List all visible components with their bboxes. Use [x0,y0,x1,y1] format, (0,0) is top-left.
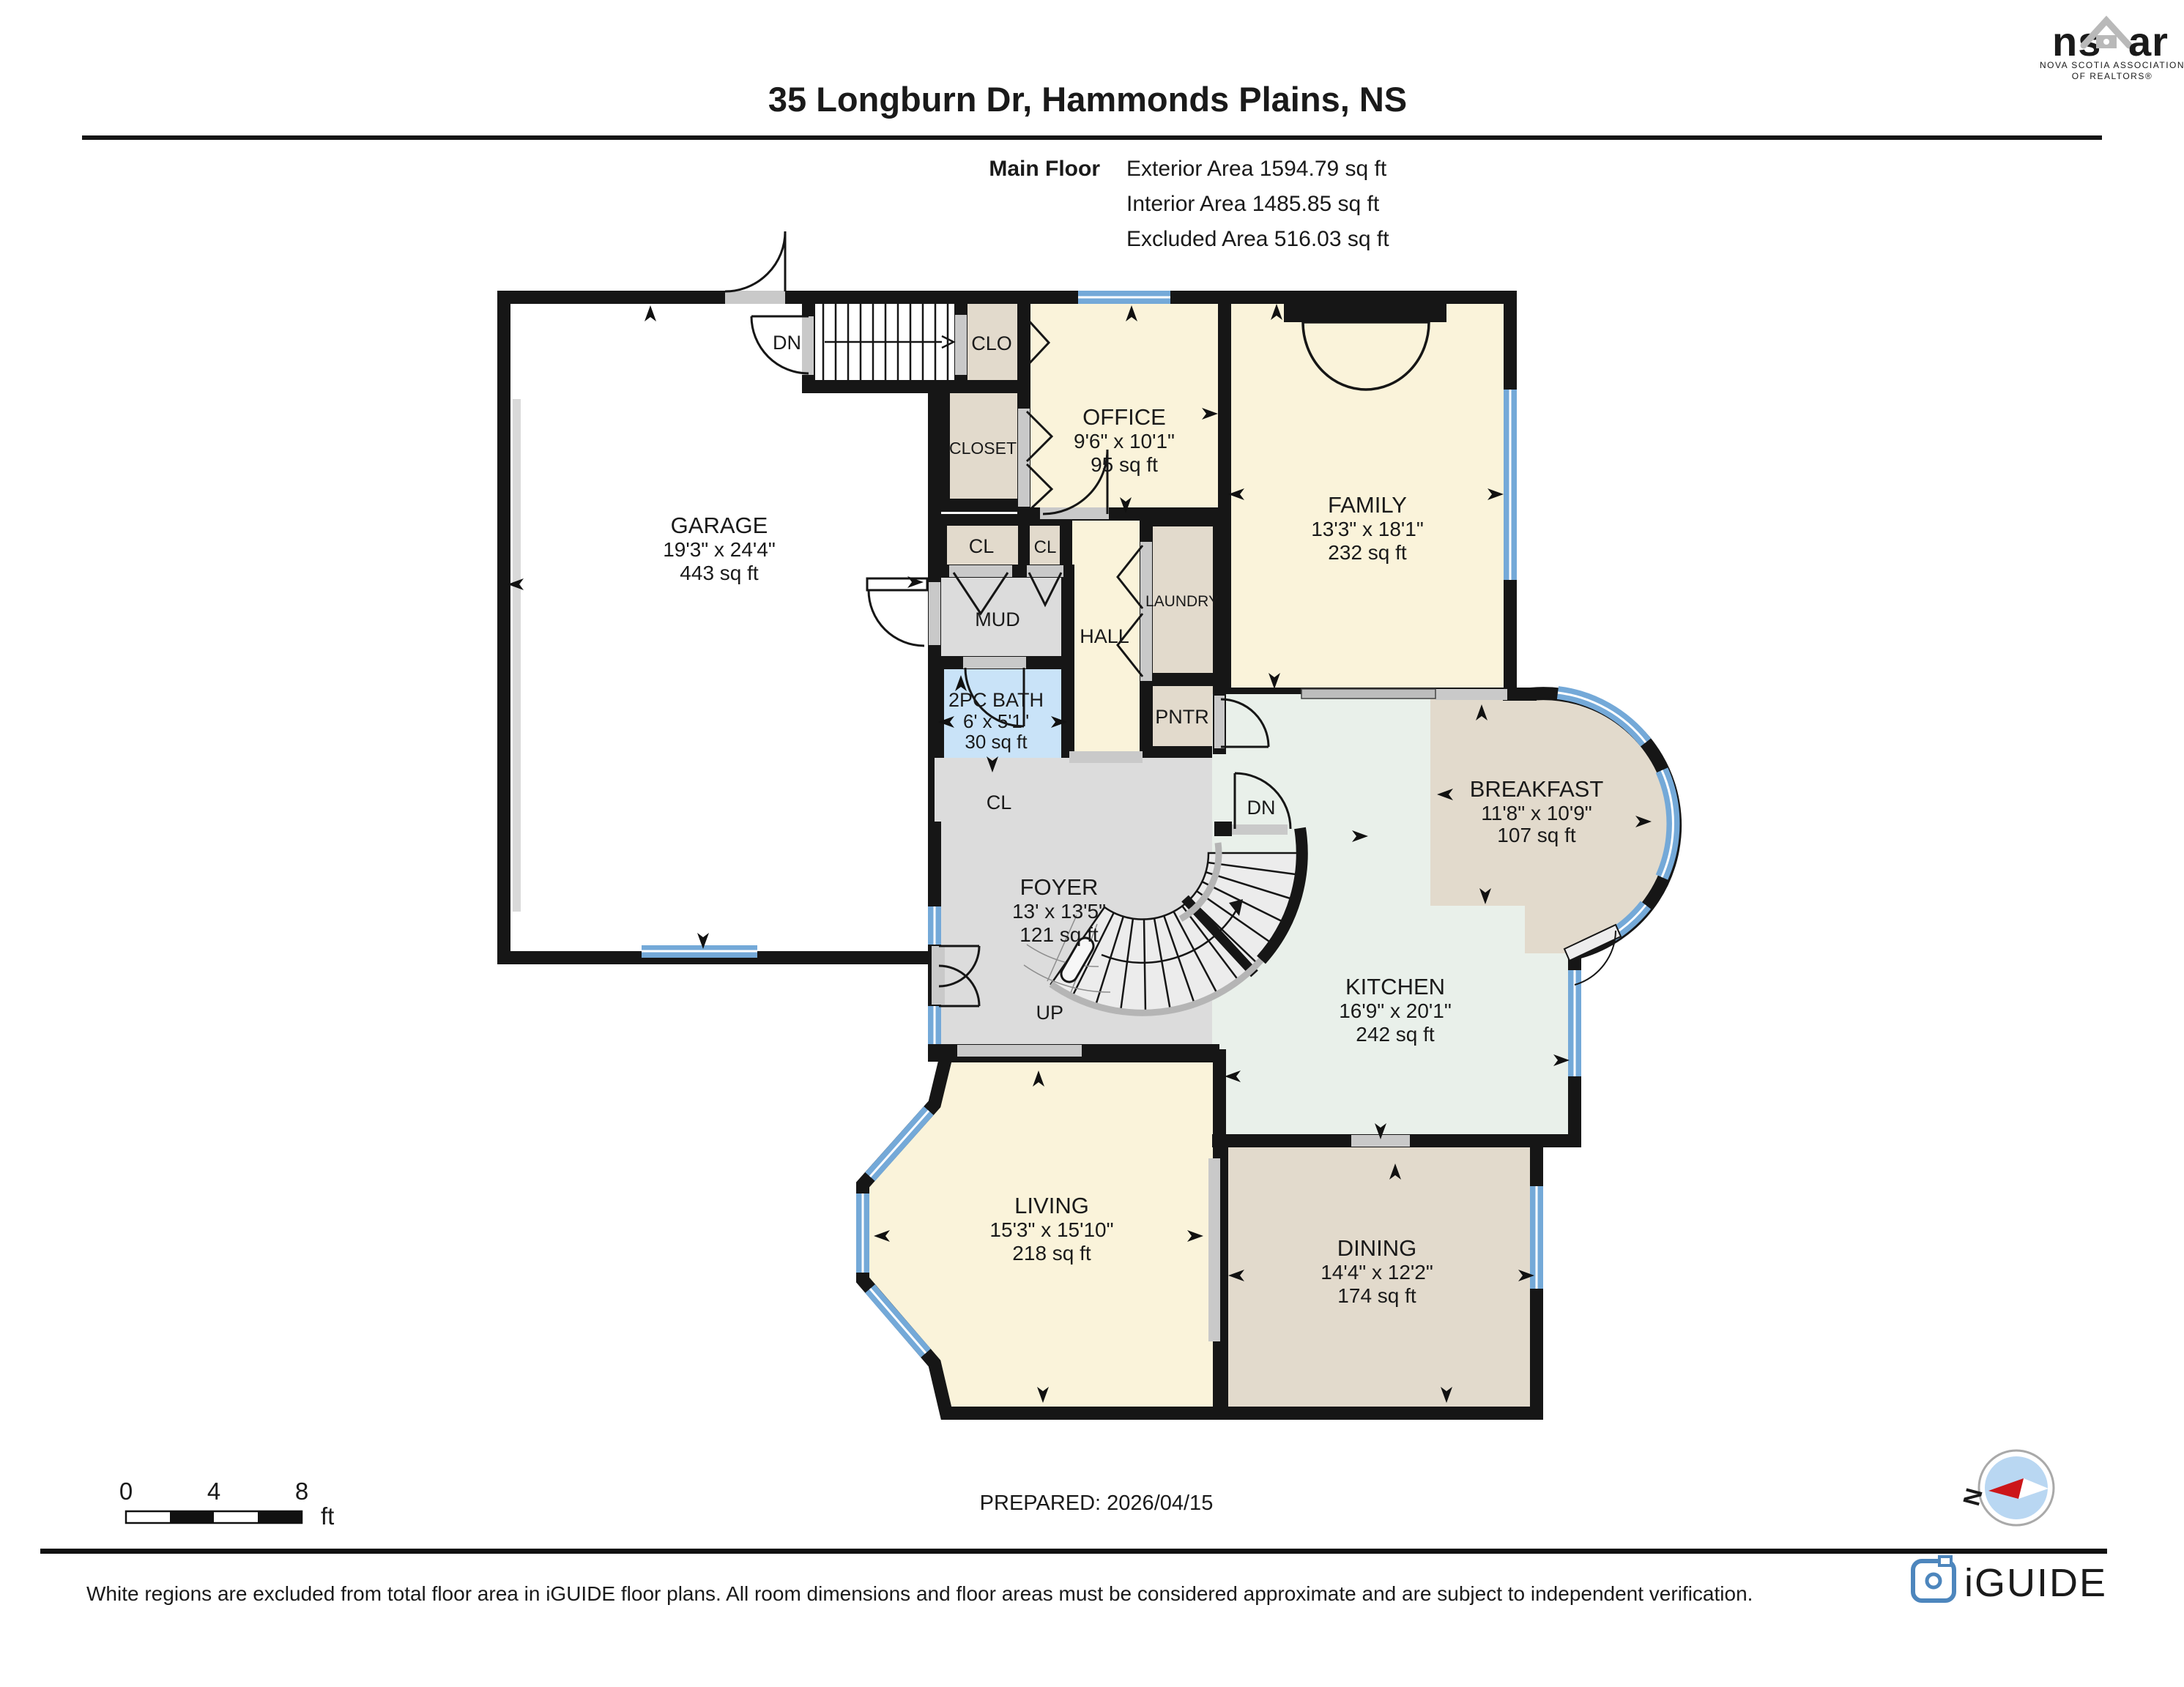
room-label-closet: CLOSET [949,439,1017,458]
room-dims-office: 9'6" x 10'1" [1074,430,1175,453]
breakfast-floor-edge [1428,906,1525,954]
stat-exterior: Exterior Area 1594.79 sq ft [1126,157,1387,181]
room-label-laundry: LAUNDRY [1145,593,1219,610]
sill-closet-bifold [1018,409,1030,507]
nsar-tagline-1: NOVA SCOTIA ASSOCIATION [2040,60,2184,70]
room-area-breakfast: 107 sq ft [1497,824,1576,846]
room-area-foyer: 121 sq ft [1019,923,1099,946]
room-label-family: FAMILY [1328,492,1407,518]
room-area-bath: 30 sq ft [965,731,1028,753]
header: 35 Longburn Dr, Hammonds Plains, NS Main… [82,80,2102,251]
window-foyer-upper [928,906,941,945]
fireplace-block [1284,297,1446,322]
scale-tick-4: 4 [207,1478,220,1505]
footer-disclaimer: White regions are excluded from total fl… [86,1582,1753,1605]
window-kitchen [1568,970,1581,1076]
iguide-icon-notch [1939,1557,1951,1565]
room-label-hall: HALL [1080,625,1129,647]
sill-clo [955,315,967,375]
nsar-logo: ns ar NOVA SCOTIA ASSOCIATION OF REALTOR… [2040,18,2184,81]
room-area-dining: 174 sq ft [1337,1284,1416,1307]
floor-label: Main Floor [989,157,1100,181]
stat-excluded: Excluded Area 516.03 sq ft [1126,227,1389,251]
page-title: 35 Longburn Dr, Hammonds Plains, NS [768,80,1407,119]
footer-rule [40,1549,2107,1554]
stairs-dn-mid-label: DN [1247,797,1276,819]
room-dims-foyer: 13' x 13'5" [1012,900,1106,923]
room-label-cl-b: CL [1034,537,1057,557]
window-garage-door [642,945,757,958]
nsar-tagline-2: OF REALTORS® [2072,71,2153,81]
room-label-office: OFFICE [1082,404,1166,430]
nsar-text-ns: ns [2052,18,2101,64]
nsar-text-ar: ar [2128,18,2169,64]
iguide-icon [1913,1561,1954,1601]
iguide-wordmark: iGUIDE [1964,1561,2107,1605]
stair-entry-jamb [1214,822,1232,836]
sill-front-door [932,946,945,1005]
window-office [1078,291,1170,304]
scale-bar: 0 4 8 ft [119,1478,335,1530]
room-dims-bath: 6' x 5'1" [963,710,1029,732]
stairs-dn-top-label: DN [773,332,801,354]
sill-cl-b [1027,565,1063,577]
sill-cl-a [949,565,1012,577]
sill-family-breakfast [1435,689,1507,700]
sill-mud-door [929,582,940,645]
room-dims-dining: 14'4" x 12'2" [1321,1261,1433,1284]
sill-pntr [1214,696,1225,748]
family-sliding-door [1301,689,1435,699]
scale-bar-seg2 [170,1511,214,1523]
room-label-garage: GARAGE [671,513,768,538]
room-label-pntr: PNTR [1155,706,1209,728]
room-area-family: 232 sq ft [1328,541,1407,564]
scale-unit: ft [321,1502,334,1530]
sill-foyer-living [957,1045,1082,1057]
sill-laundry [1140,542,1152,681]
room-area-living: 218 sq ft [1012,1242,1091,1265]
scale-bar-seg4 [258,1511,302,1523]
room-dims-garage: 19'3" x 24'4" [663,538,776,561]
sill-stairs-landing [802,316,814,375]
room-garage [504,297,935,958]
room-label-living: LIVING [1014,1193,1089,1218]
sill-living-dining [1208,1158,1220,1341]
sill-hall-foyer [1069,751,1143,763]
window-foyer-lower [928,1006,941,1044]
room-label-mud: MUD [975,608,1020,630]
room-label-breakfast: BREAKFAST [1470,776,1604,802]
room-label-clo: CLO [971,332,1012,354]
sill-garage-exterior [725,291,785,304]
stairs-up-label: UP [1036,1002,1063,1024]
room-area-garage: 443 sq ft [680,562,759,584]
scale-tick-0: 0 [119,1478,133,1505]
floorplan-canvas: 35 Longburn Dr, Hammonds Plains, NS Main… [0,0,2184,1687]
nsar-house-window [2103,39,2109,45]
room-dims-living: 15'3" x 15'10" [989,1218,1113,1241]
room-label-bath: 2PC BATH [948,689,1044,711]
header-rule [82,135,2102,140]
room-label-dining: DINING [1337,1235,1417,1261]
scale-tick-8: 8 [295,1478,308,1505]
compass: N [1958,1450,2054,1525]
room-label-kitchen: KITCHEN [1345,974,1445,999]
sill-stair-kitchen [1232,824,1288,835]
window-dining [1530,1186,1543,1289]
sill-bath [963,657,1026,669]
room-label-cl-a: CL [969,535,995,557]
prepared-date: PREPARED: 2026/04/15 [980,1492,1214,1515]
room-dims-family: 13'3" x 18'1" [1311,518,1424,540]
iguide-icon-lens [1927,1574,1940,1587]
room-label-foyer: FOYER [1020,874,1099,900]
room-label-cl-c: CL [987,792,1012,813]
door-garage-exterior-arc [725,231,785,291]
room-area-office: 95 sq ft [1091,453,1158,476]
room-dims-kitchen: 16'9" x 20'1" [1339,999,1452,1022]
room-dims-breakfast: 11'8" x 10'9" [1481,802,1591,824]
room-area-kitchen: 242 sq ft [1356,1023,1435,1046]
iguide-logo: iGUIDE [1913,1557,2107,1605]
stat-interior: Interior Area 1485.85 sq ft [1126,192,1380,216]
window-family [1504,390,1517,580]
bay-top-wall [1503,688,1537,701]
garage-wall-liner [513,399,521,912]
floorplan-page: 35 Longburn Dr, Hammonds Plains, NS Main… [0,0,2184,1687]
